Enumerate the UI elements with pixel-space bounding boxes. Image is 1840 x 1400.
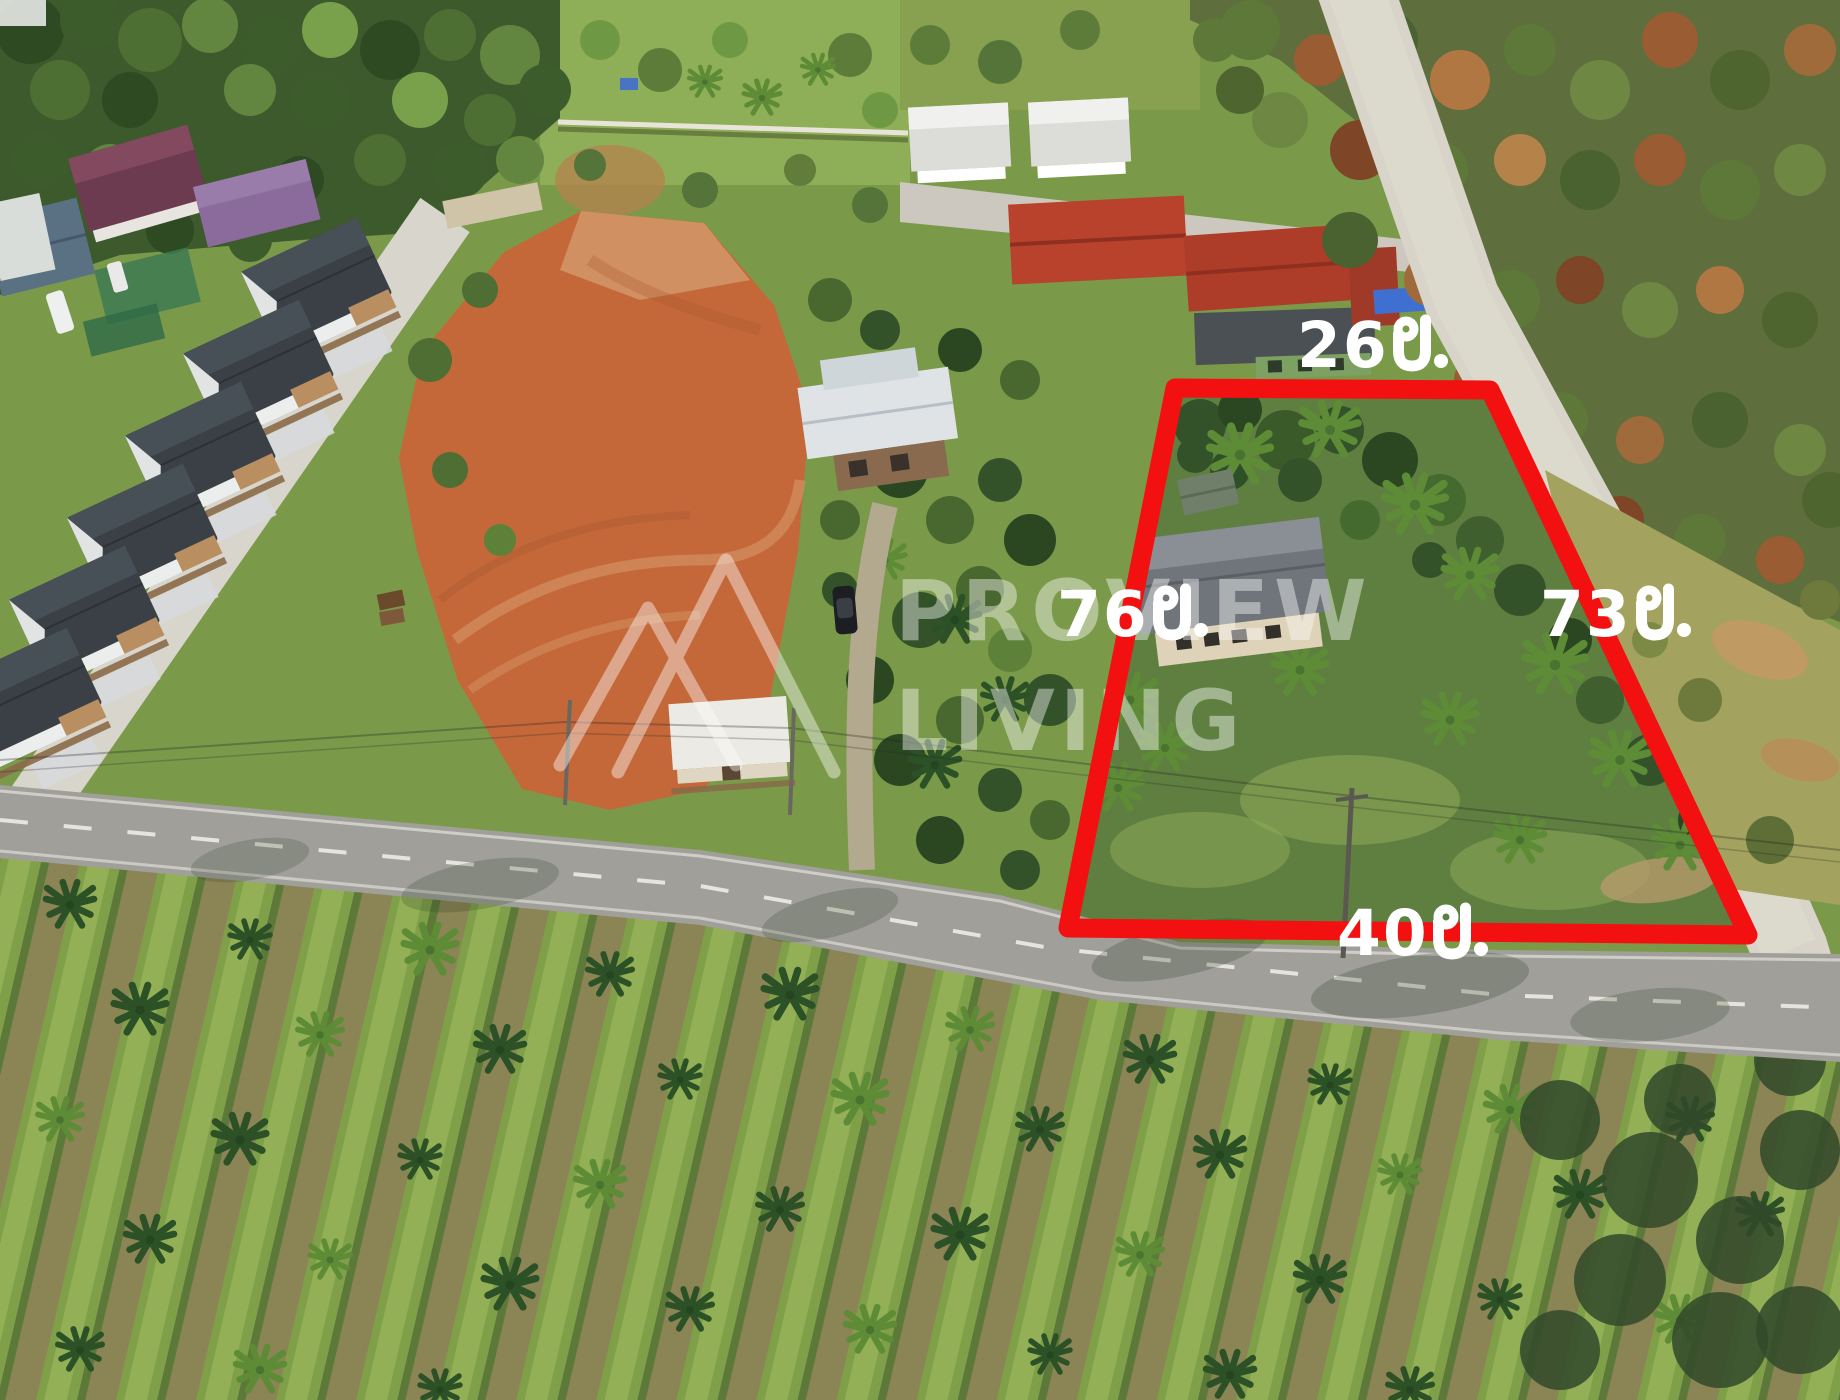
dimension-value-top: 26 <box>1297 309 1389 382</box>
aerial-photo: PROVIEW LIVING 26 76 73 40 <box>0 0 1840 1400</box>
red-roof-building <box>1008 195 1188 284</box>
twin-house-1 <box>908 102 1012 183</box>
dimension-value-bottom: 40 <box>1337 897 1429 970</box>
building-roof <box>0 0 46 26</box>
watermark-line2: LIVING <box>895 672 1245 770</box>
twin-house-2 <box>1028 97 1132 178</box>
aerial-scene: PROVIEW LIVING 26 76 73 40 <box>0 0 1840 1400</box>
dimension-value-left: 76 <box>1057 578 1149 651</box>
black-car <box>832 585 858 635</box>
dimension-value-right: 73 <box>1540 578 1632 651</box>
